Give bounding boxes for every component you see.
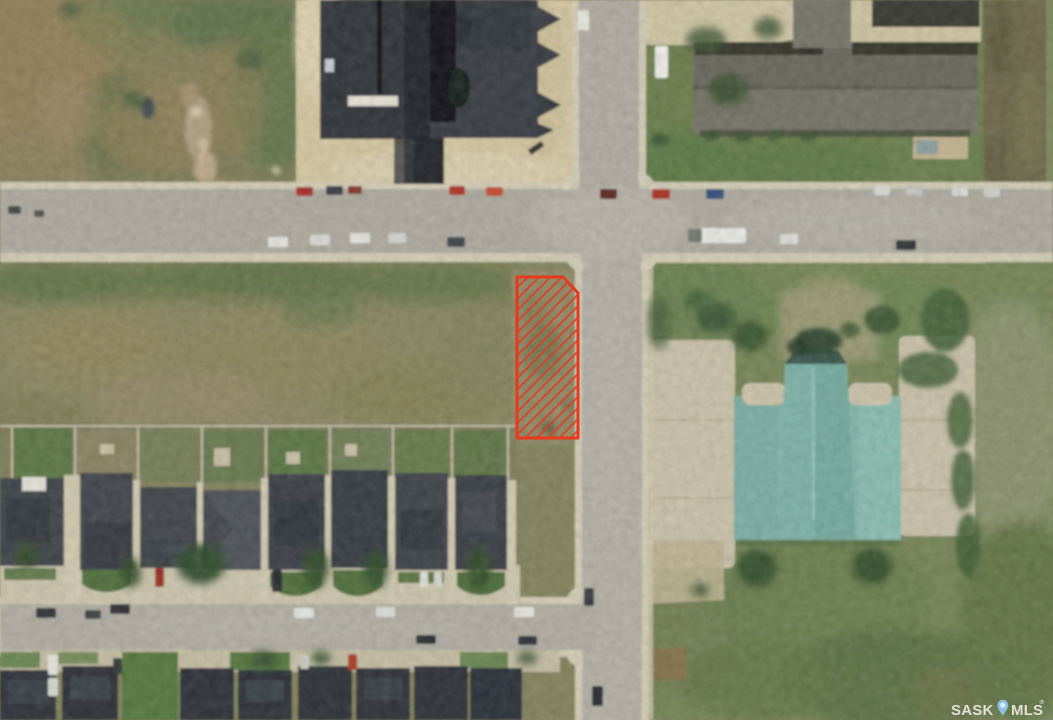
- svg-text:SASK: SASK: [951, 702, 993, 719]
- svg-text:MLS: MLS: [1011, 702, 1043, 719]
- svg-text:®: ®: [1040, 698, 1045, 706]
